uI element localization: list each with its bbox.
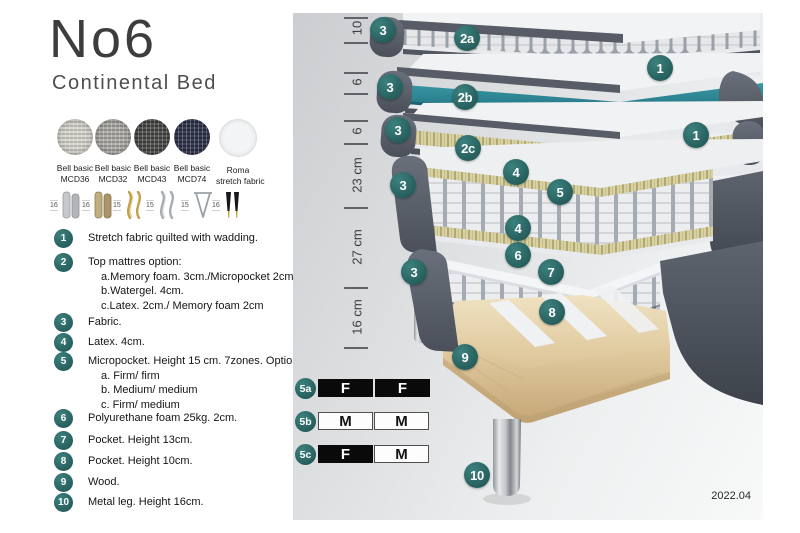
firmness-cell: F bbox=[375, 379, 430, 397]
legend-text: Micropocket. Height 15 cm. 7zones. Optio… bbox=[88, 355, 301, 367]
fabric-swatch-circle bbox=[134, 119, 170, 155]
diagram-badge-pocket-10: 8 bbox=[539, 299, 565, 325]
dimension-tick bbox=[344, 42, 368, 44]
legend-badge: 8 bbox=[54, 452, 73, 471]
legend-subtext: b.Watergel. 4cm. bbox=[101, 285, 184, 297]
leg-option-cylinder-brass: 16 bbox=[82, 190, 114, 220]
leg-height: 16 bbox=[212, 200, 220, 211]
diagram-badge-2c: 2c bbox=[455, 135, 481, 161]
diagram-badge-stretch-1a: 1 bbox=[647, 55, 673, 81]
dimension-label-10cm: 10 bbox=[350, 21, 365, 35]
product-subtitle: Continental Bed bbox=[52, 72, 217, 95]
dimension-label-27cm: 27 cm bbox=[350, 229, 365, 264]
legend-text: Top mattres option: bbox=[88, 256, 182, 268]
legend-badge: 1 bbox=[54, 229, 73, 248]
legend-badge: 10 bbox=[54, 493, 73, 512]
legend-badge: 4 bbox=[54, 333, 73, 352]
leg-twist-silver-icon bbox=[156, 191, 180, 219]
dimension-tick bbox=[344, 17, 368, 19]
leg-cylinder-brass-icon bbox=[92, 191, 114, 219]
diagram-badge-wood: 9 bbox=[452, 344, 478, 370]
legend-badge: 9 bbox=[54, 473, 73, 492]
leg-cone-black-gold-icon bbox=[222, 191, 244, 219]
dimension-tick bbox=[344, 207, 368, 209]
leg-height: 15 bbox=[146, 200, 154, 211]
leg-cylinder-silver-icon bbox=[60, 191, 82, 219]
bed-illustration bbox=[293, 13, 763, 520]
firmness-cell: M bbox=[318, 412, 373, 430]
leg-twist-gold-icon bbox=[123, 191, 147, 219]
legend-text: Stretch fabric quilted with wadding. bbox=[88, 232, 258, 244]
diagram-badge-micropocket: 5 bbox=[547, 179, 573, 205]
diagram-badge-fabric: 3 bbox=[377, 74, 403, 100]
legend-text: Metal leg. Height 16cm. bbox=[88, 496, 204, 508]
diagram-badge-pocket-13: 7 bbox=[538, 259, 564, 285]
fabric-swatch-label: Romastretch fabric bbox=[216, 165, 260, 186]
legend-badge: 7 bbox=[54, 431, 73, 450]
leg-height: 15 bbox=[181, 200, 189, 211]
fabric-swatch-label: Bell basicMCD74 bbox=[170, 163, 214, 184]
diagram-badge-fabric: 3 bbox=[370, 17, 396, 43]
leg-height: 16 bbox=[82, 200, 90, 211]
dimension-label-16cm: 16 cm bbox=[350, 299, 365, 334]
firmness-cell: F bbox=[318, 379, 373, 397]
legend-text: Polyurethane foam 25kg. 2cm. bbox=[88, 412, 237, 424]
fabric-swatch-circle bbox=[219, 119, 257, 157]
diagram-badge-fabric: 3 bbox=[390, 172, 416, 198]
leg-option-twist-silver: 15 bbox=[146, 190, 180, 220]
legend-text: Latex. 4cm. bbox=[88, 336, 145, 348]
dimension-tick bbox=[344, 143, 368, 145]
dimension-tick bbox=[344, 287, 368, 289]
dimension-tick bbox=[344, 93, 368, 95]
dimension-tick bbox=[344, 120, 368, 122]
legend-text: Pocket. Height 10cm. bbox=[88, 455, 193, 467]
firmness-cell: F bbox=[318, 445, 373, 463]
diagram-badge-stretch-1b: 1 bbox=[683, 122, 709, 148]
legend-badge: 5 bbox=[54, 352, 73, 371]
fabric-swatch-circle bbox=[174, 119, 210, 155]
product-title: No6 bbox=[49, 8, 157, 70]
firmness-badge-5c: 5c bbox=[295, 444, 316, 465]
legend-subtext: b. Medium/ medium bbox=[101, 384, 198, 396]
fabric-swatch-label: Bell basicMCD43 bbox=[130, 163, 174, 184]
diagram-badge-2a: 2a bbox=[454, 25, 480, 51]
legend-text: Fabric. bbox=[88, 316, 122, 328]
legend-badge: 3 bbox=[54, 313, 73, 332]
diagram-badge-fabric: 3 bbox=[385, 117, 411, 143]
leg-option-cone-black-gold: 16 bbox=[212, 190, 244, 220]
leg-option-twist-gold: 15 bbox=[113, 190, 147, 220]
diagram-badge-foam: 6 bbox=[505, 242, 531, 268]
diagram-badge-fabric: 3 bbox=[401, 259, 427, 285]
diagram-badge-latex-top: 4 bbox=[503, 159, 529, 185]
fabric-swatch-roma: Romastretch fabric bbox=[216, 119, 260, 186]
fabric-swatch-label: Bell basicMCD32 bbox=[91, 163, 135, 184]
legend-subtext: a. Firm/ firm bbox=[101, 370, 160, 382]
diagram-badge-2b: 2b bbox=[452, 84, 478, 110]
fabric-swatch-circle bbox=[95, 119, 131, 155]
version-stamp: 2022.04 bbox=[711, 490, 751, 502]
fabric-swatch-circle bbox=[57, 119, 93, 155]
firmness-cell: M bbox=[374, 412, 429, 430]
legend-subtext: a.Memory foam. 3cm./Micropocket 2cm bbox=[101, 271, 294, 283]
legend-badge: 2 bbox=[54, 253, 73, 272]
fabric-swatch-mcd74: Bell basicMCD74 bbox=[170, 119, 214, 184]
dimension-tick bbox=[344, 347, 368, 349]
dimension-tick bbox=[344, 72, 368, 74]
infographic-page: No6 Continental Bed Bell basicMCD36 Bell… bbox=[0, 0, 800, 533]
leg-option-hairpin: 15 bbox=[181, 190, 215, 220]
dimension-label-6cm-b: 6 bbox=[350, 127, 365, 134]
legend-subtext: c.Latex. 2cm./ Memory foam 2cm bbox=[101, 300, 264, 312]
firmness-cell: M bbox=[374, 445, 429, 463]
legend-subtext: c. Firm/ medium bbox=[101, 399, 180, 411]
dimension-label-23cm: 23 cm bbox=[350, 157, 365, 192]
legend-badge: 6 bbox=[54, 409, 73, 428]
diagram-badge-metal-leg: 10 bbox=[464, 462, 490, 488]
leg-height: 15 bbox=[113, 200, 121, 211]
leg-option-cylinder-silver: 16 bbox=[50, 190, 82, 220]
leg-height: 16 bbox=[50, 200, 58, 211]
fabric-swatch-mcd43: Bell basicMCD43 bbox=[130, 119, 174, 184]
exploded-diagram-panel: 10 6 6 23 cm 27 cm 16 cm 3 2a 1 3 2b 1 3… bbox=[293, 13, 763, 520]
firmness-badge-5b: 5b bbox=[295, 411, 316, 432]
dimension-label-6cm-a: 6 bbox=[350, 78, 365, 85]
legend-text: Pocket. Height 13cm. bbox=[88, 434, 193, 446]
legend-text: Wood. bbox=[88, 476, 120, 488]
firmness-badge-5a: 5a bbox=[295, 378, 316, 399]
fabric-swatch-mcd32: Bell basicMCD32 bbox=[91, 119, 135, 184]
diagram-badge-latex-bot: 4 bbox=[505, 215, 531, 241]
